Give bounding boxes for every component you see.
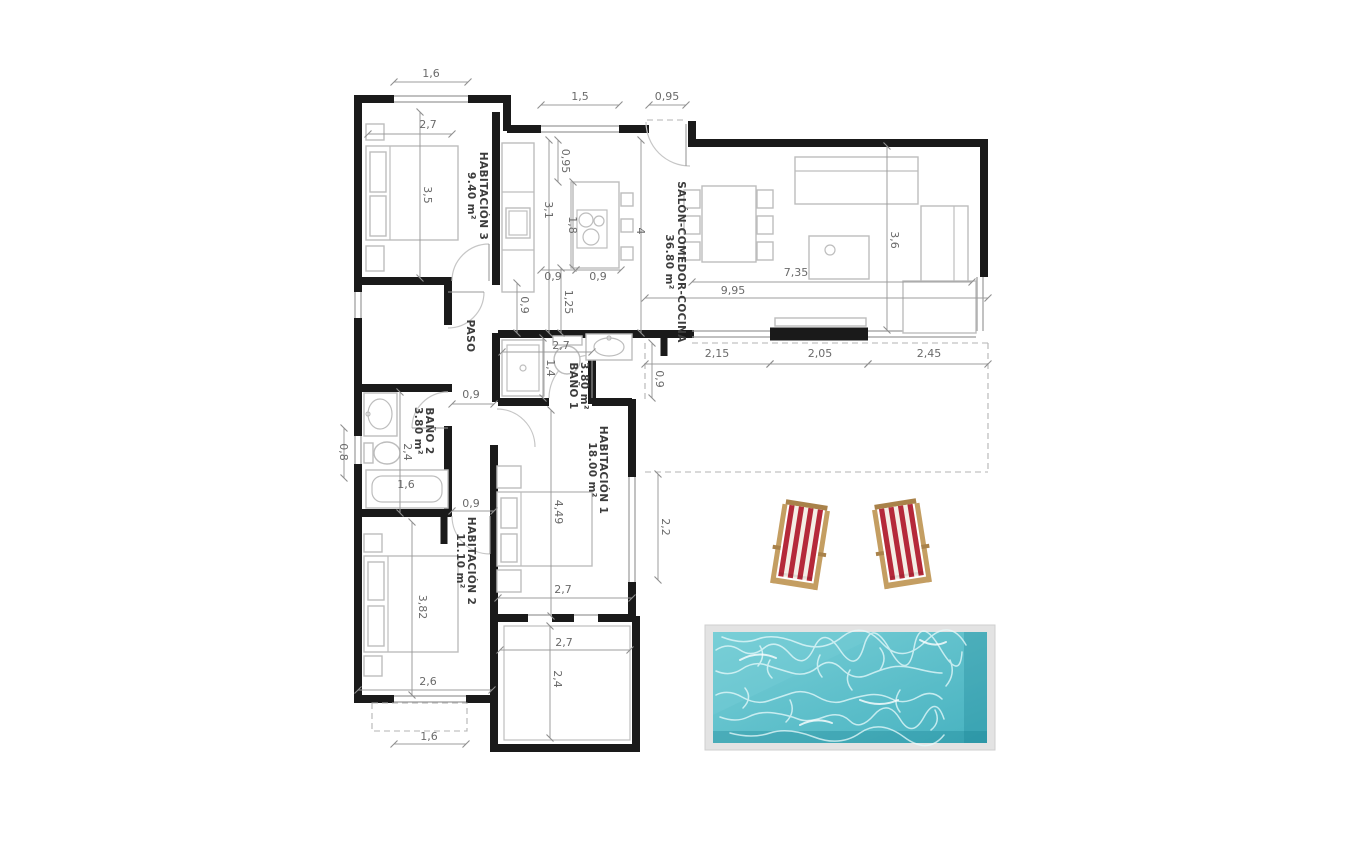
dim-label: 0,9 bbox=[518, 296, 531, 314]
dim-label: 0,95 bbox=[655, 90, 680, 103]
dim-label: 1,6 bbox=[397, 478, 415, 491]
room-area-habitacion2: 11.10 m² bbox=[454, 533, 466, 589]
dim-label: 0,8 bbox=[337, 443, 350, 461]
dining-table bbox=[684, 186, 773, 262]
bed-hab1 bbox=[497, 466, 592, 592]
room-area-salon: 36.80 m² bbox=[663, 234, 675, 290]
dim-label: 3,82 bbox=[416, 595, 429, 620]
deck-chair-2 bbox=[868, 497, 935, 589]
dim-label: 3,1 bbox=[542, 201, 555, 219]
kitchen-island bbox=[571, 182, 633, 268]
dim-label: 3,5 bbox=[421, 186, 434, 204]
dim-label: 1,6 bbox=[422, 67, 440, 80]
dim-label: 2,45 bbox=[917, 347, 942, 360]
dim-label: 2,6 bbox=[419, 675, 437, 688]
dim-label: 2,7 bbox=[419, 118, 437, 131]
coffee-table bbox=[775, 236, 869, 326]
dim-label: 0,9 bbox=[462, 497, 480, 510]
room-area-habitacion3: 9.40 m² bbox=[465, 172, 477, 220]
dim-label: 4,49 bbox=[552, 500, 565, 525]
room-area-habitacion1: 18.00 m² bbox=[586, 442, 598, 498]
dim-label: 7,35 bbox=[784, 266, 809, 279]
room-label-paso: PASO bbox=[464, 320, 476, 353]
dim-label: 4 bbox=[634, 228, 647, 235]
dim-label: 0,9 bbox=[544, 270, 562, 283]
dim-label: 1,4 bbox=[544, 359, 557, 377]
bed-hab3 bbox=[366, 124, 458, 271]
deck-chair-1 bbox=[767, 498, 834, 590]
floor-plan: 1,6 2,7 3,5 1,5 0,95 0,95 3,1 1,8 4 0,9 … bbox=[0, 0, 1360, 850]
dim-label: 1,8 bbox=[566, 216, 579, 234]
bed-hab2 bbox=[364, 534, 458, 676]
dim-label: 0,9 bbox=[589, 270, 607, 283]
dim-label: 2,05 bbox=[808, 347, 833, 360]
dim-label: 9,95 bbox=[721, 284, 746, 297]
dim-label: 3,6 bbox=[888, 231, 901, 249]
dim-label: 1,5 bbox=[571, 90, 589, 103]
dim-label: 1,6 bbox=[420, 730, 438, 743]
room-area-bano1: 3.80 m² bbox=[578, 362, 590, 410]
room-label-salon: SALÓN-COMEDOR-COCINA bbox=[675, 181, 688, 343]
dim-label: 2,7 bbox=[555, 636, 573, 649]
dim-label: 0,9 bbox=[462, 388, 480, 401]
dim-label: 2,7 bbox=[554, 583, 572, 596]
dim-label: 2,2 bbox=[659, 518, 672, 536]
dim-label: 1,25 bbox=[562, 290, 575, 315]
dim-label: 0,9 bbox=[653, 370, 666, 388]
dim-label: 0,95 bbox=[559, 149, 572, 174]
dim-label: 2,7 bbox=[552, 339, 570, 352]
kitchen-counter bbox=[502, 143, 534, 292]
floor-plan-page: 1,6 2,7 3,5 1,5 0,95 0,95 3,1 1,8 4 0,9 … bbox=[0, 0, 1360, 850]
dim-label: 2,15 bbox=[705, 347, 730, 360]
room-label-habitacion3: HABITACIÓN 3 bbox=[477, 152, 490, 240]
pool bbox=[705, 625, 995, 750]
room-area-bano2: 3.80 m² bbox=[412, 407, 424, 455]
dim-label: 2,4 bbox=[551, 670, 564, 688]
